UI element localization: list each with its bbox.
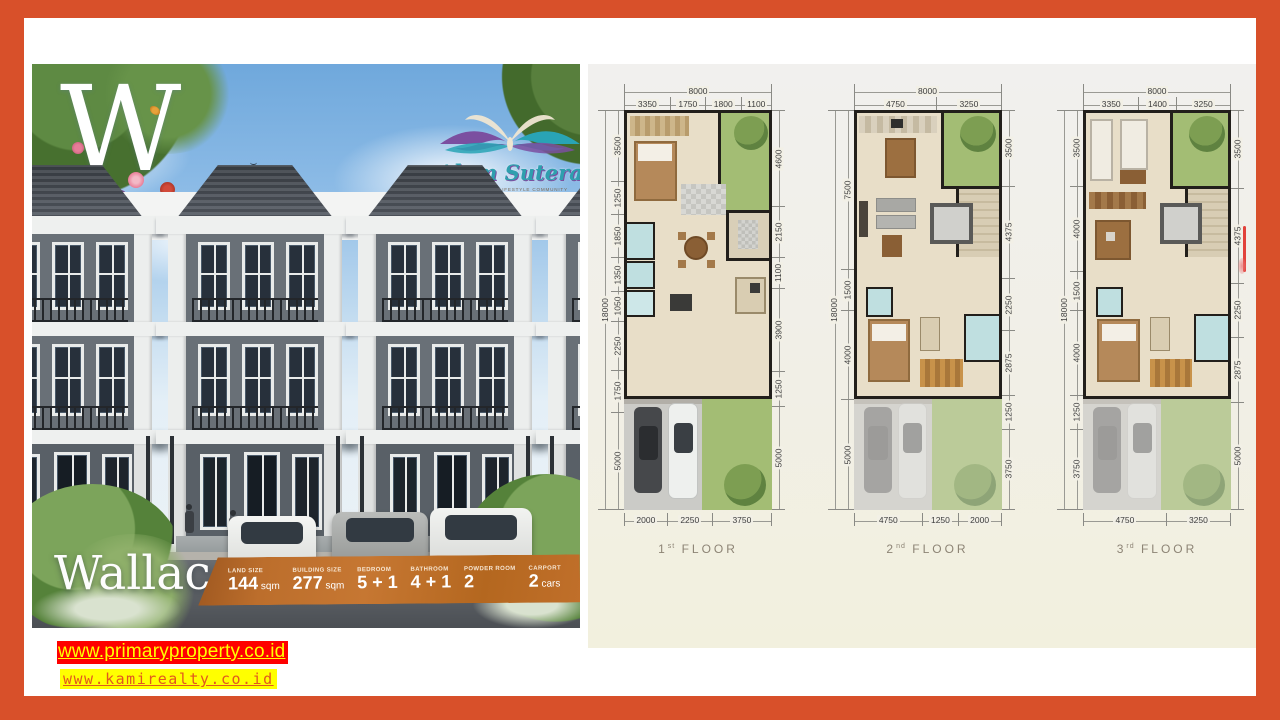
plan-top-dimensions: 80003350175018001100	[624, 84, 772, 110]
dimension-segment: 8000	[1083, 84, 1231, 97]
canopy	[536, 430, 580, 444]
dimension-value: 3750	[1003, 458, 1013, 481]
dimension-segment: 1750	[671, 97, 706, 110]
coffee-table	[882, 235, 902, 258]
width-total-dimension: 8000	[1083, 84, 1231, 97]
roof	[32, 164, 158, 218]
height-total-dimension: 18000	[828, 110, 841, 510]
dimension-segment: 3900	[772, 289, 785, 372]
dimension-value: 1100	[745, 99, 767, 109]
dimension-segment: 2150	[772, 207, 785, 258]
dimension-value: 3750	[1072, 458, 1082, 481]
cornice-band	[32, 322, 164, 336]
second-floor-wall	[548, 336, 580, 430]
dimension-segment: 8000	[854, 84, 1002, 97]
dimension-segment: 1750	[611, 371, 624, 412]
dimension-value: 4600	[774, 147, 784, 170]
dimension-segment: 18000	[1057, 110, 1070, 510]
canopy	[32, 430, 164, 444]
pilaster	[358, 336, 376, 430]
bed-pillows	[1102, 324, 1136, 341]
top-dimensions: 3350175018001100	[624, 97, 772, 110]
dimension-segment: 2000	[959, 513, 1002, 526]
window-mullion	[435, 377, 461, 379]
dimension-segment: 5000	[1231, 403, 1244, 510]
dimension-value: 1250	[1003, 401, 1013, 424]
dimension-segment: 2250	[1231, 284, 1244, 338]
dimension-segment: 5000	[772, 407, 785, 511]
dresser	[920, 317, 940, 351]
window-mullion	[32, 273, 37, 275]
plan-bottom-dimensions: 475012502000	[854, 513, 1002, 526]
balcony-railing	[382, 406, 508, 430]
dimension-value: 3500	[1003, 137, 1013, 160]
bathroom	[1194, 314, 1228, 362]
dimension-segment: 4000	[841, 311, 854, 401]
dimension-value: 3500	[1072, 137, 1082, 160]
dimension-value: 1400	[1146, 99, 1169, 109]
floor-word: FLOOR	[906, 542, 969, 556]
window-mullion	[258, 347, 260, 413]
tv-console	[859, 201, 868, 238]
bottom-dimensions: 475012502000	[854, 513, 1002, 526]
window-mullion	[99, 273, 125, 275]
window-mullion	[391, 273, 417, 275]
dining-table	[684, 236, 708, 260]
window-mullion	[289, 273, 315, 275]
dimension-segment: 3350	[1083, 97, 1139, 110]
window-mullion	[99, 377, 125, 379]
car-top-view-dark	[634, 407, 662, 494]
roof	[542, 164, 580, 218]
bathroom	[1096, 287, 1123, 317]
dimension-value: 2000	[634, 515, 657, 525]
dimension-segment: 2000	[624, 513, 668, 526]
dimension-segment: 1500	[1070, 272, 1083, 311]
sofa	[876, 198, 916, 212]
third-floor-wall	[358, 234, 532, 322]
dimension-value: 5000	[613, 449, 623, 472]
dimension-segment: 1500	[841, 270, 854, 311]
bottom-dimensions: 47503250	[1083, 513, 1231, 526]
dimension-value: 1250	[1072, 401, 1082, 424]
pilaster	[134, 234, 152, 322]
stair-void-skylight	[930, 203, 973, 244]
dimension-value: 1250	[613, 187, 623, 210]
dimension-value: 3750	[730, 515, 753, 525]
dimension-value: 2875	[1003, 351, 1013, 374]
cornice-band	[32, 216, 164, 234]
right-dimensions: 35004375225028755000	[1231, 110, 1244, 510]
stair-void-skylight	[1160, 203, 1203, 244]
dimension-value: 2250	[1233, 299, 1243, 322]
dimension-segment: 2250	[1002, 279, 1015, 332]
dimension-segment: 4750	[1083, 513, 1167, 526]
bed-single	[1090, 119, 1113, 181]
dimension-segment: 3250	[1167, 513, 1231, 526]
dimension-segment: 4375	[1002, 187, 1015, 279]
canopy	[156, 430, 354, 444]
dimension-value: 18000	[600, 296, 610, 324]
pilaster	[168, 336, 186, 430]
dimension-value: 18000	[1059, 296, 1069, 324]
window-mullion	[302, 347, 304, 413]
dimension-segment: 3500	[1070, 110, 1083, 187]
dimension-segment: 4000	[1070, 187, 1083, 272]
dimension-segment: 2875	[1002, 331, 1015, 395]
third-floor-wall	[548, 234, 580, 322]
plan-bottom-dimensions: 47503250	[1083, 513, 1231, 526]
window-mullion	[435, 273, 461, 275]
dimension-value: 5000	[774, 446, 784, 469]
spec-item-bedroom: BEDROOM5 + 1	[357, 567, 409, 594]
top-dimensions: 335014003250	[1083, 97, 1231, 110]
spec-value: 5 + 1	[357, 573, 409, 593]
window-mullion	[245, 377, 271, 379]
dimension-value: 3250	[957, 99, 980, 109]
dimension-segment: 18000	[828, 110, 841, 510]
pilaster	[514, 336, 532, 430]
wardrobe	[920, 359, 963, 387]
window-mullion	[55, 377, 81, 379]
width-total-dimension: 8000	[624, 84, 772, 97]
frame-border-left	[0, 0, 24, 720]
dimension-value: 18000	[829, 296, 839, 324]
dimension-value: 1750	[676, 99, 699, 109]
dimension-value: 1500	[842, 278, 852, 301]
dimension-segment: 1350	[611, 258, 624, 292]
faded-overlay	[1083, 399, 1231, 510]
dimension-value: 8000	[1146, 86, 1169, 96]
dimension-value: 2150	[774, 221, 784, 244]
third-floor-wall	[168, 234, 342, 322]
dimension-value: 7500	[842, 178, 852, 201]
window-mullion	[32, 377, 37, 379]
plan-middle: 1800035001250185013501050225017505000460…	[598, 110, 785, 510]
frame-border-bottom	[0, 696, 1280, 720]
primaryproperty-link[interactable]: www.primaryproperty.co.id	[57, 641, 288, 664]
garden-tree	[960, 116, 996, 152]
dimension-value: 2250	[613, 334, 623, 357]
spec-item-bathroom: BATHROOM4 + 1	[410, 566, 462, 593]
dimension-value: 4000	[1072, 217, 1082, 240]
window-mullion	[68, 347, 70, 413]
chair	[678, 260, 686, 268]
dimension-segment: 5000	[611, 413, 624, 510]
chair	[678, 232, 686, 240]
butterfly-logo-icon	[435, 104, 580, 166]
left-dimensions: 7500150040005000	[841, 110, 854, 510]
left-dimensions: 350040001500400012503750	[1070, 110, 1083, 510]
dimension-segment: 1400	[1139, 97, 1176, 110]
pilaster	[134, 336, 152, 430]
dimension-segment: 3750	[1002, 430, 1015, 510]
dimension-segment: 2875	[1231, 338, 1244, 404]
floor-ordinal: nd	[896, 543, 906, 550]
window-mullion	[201, 273, 227, 275]
plan-top-dimensions: 800047503250	[854, 84, 1002, 110]
roof	[352, 164, 538, 218]
bed-pillows	[638, 144, 672, 161]
window-mullion	[479, 273, 505, 275]
dimension-segment: 1850	[611, 215, 624, 258]
car-top-view-white	[668, 403, 698, 499]
dimension-segment: 8000	[624, 84, 772, 97]
dimension-segment: 3500	[611, 110, 624, 182]
chair	[1106, 232, 1115, 241]
spec-item-powder-room: POWDER ROOM2	[464, 566, 527, 593]
floor-number: 3	[1117, 542, 1127, 556]
dimension-value: 1800	[712, 99, 735, 109]
floor-label: 2nd FLOOR	[854, 542, 1002, 556]
dimension-value: 1050	[613, 295, 623, 318]
balcony-railing	[192, 406, 318, 430]
cornice-band	[346, 216, 544, 234]
dimension-value: 1500	[1072, 279, 1082, 302]
window-mullion	[289, 377, 315, 379]
garden-tree	[734, 116, 768, 150]
dimension-value: 4750	[884, 99, 907, 109]
spec-value: 277 sqm	[293, 574, 356, 594]
dimension-segment: 1250	[611, 182, 624, 215]
cornice-band	[536, 322, 580, 336]
window-mullion	[391, 377, 417, 379]
spec-value: 4 + 1	[411, 573, 463, 593]
car-windshield	[674, 423, 693, 453]
dimension-segment: 3500	[1231, 110, 1244, 189]
height-total-dimension: 18000	[1057, 110, 1070, 510]
floor-word: FLOOR	[1135, 542, 1198, 556]
frame-border-top	[0, 0, 1280, 18]
floor-number: 2	[886, 542, 896, 556]
dimension-segment: 1250	[1070, 396, 1083, 430]
dimension-value: 4000	[842, 343, 852, 366]
dimension-value: 8000	[916, 86, 939, 96]
patio-tiles	[681, 184, 726, 215]
cornice-band	[536, 216, 580, 234]
dimension-segment: 2250	[611, 322, 624, 372]
dimension-value: 1250	[774, 377, 784, 400]
dimension-value: 8000	[687, 86, 710, 96]
wardrobe	[630, 116, 690, 136]
dining-table	[885, 138, 916, 178]
window-mullion	[448, 347, 450, 413]
spec-value: 144 sqm	[228, 574, 291, 594]
dimension-value: 1250	[929, 515, 952, 525]
dimension-segment: 4000	[1070, 311, 1083, 396]
pilaster	[324, 336, 342, 430]
dimension-segment: 1250	[1002, 396, 1015, 430]
second-floor-wall	[358, 336, 532, 430]
plan-drawing	[624, 110, 772, 510]
kamirealty-link[interactable]: www.kamirealty.co.id	[60, 669, 277, 689]
bottom-dimensions: 200022503750	[624, 513, 772, 526]
dimension-value: 1750	[613, 380, 623, 403]
spec-unit: cars	[539, 579, 561, 590]
dimension-segment: 3350	[624, 97, 671, 110]
window-mullion	[201, 377, 227, 379]
pilaster	[168, 234, 186, 322]
dimension-value: 2875	[1233, 359, 1243, 382]
dimension-value: 2250	[1003, 293, 1013, 316]
dresser	[1150, 317, 1170, 351]
bathroom	[866, 287, 893, 317]
cornice-band	[156, 216, 354, 234]
plan-top-dimensions: 8000335014003250	[1083, 84, 1231, 110]
dimension-segment: 3750	[713, 513, 772, 526]
dimension-segment: 2250	[668, 513, 713, 526]
plan-drawing	[1083, 110, 1231, 510]
stove	[891, 119, 903, 128]
pink-smudge	[1238, 258, 1246, 274]
faded-overlay	[854, 399, 1002, 510]
spec-item-land-size: LAND SIZE144 sqm	[228, 568, 291, 595]
spec-item-carport: CARPORT2 cars	[529, 565, 573, 592]
pilaster	[514, 234, 532, 322]
second-floor-wall	[32, 336, 152, 430]
width-total-dimension: 8000	[854, 84, 1002, 97]
dimension-segment: 1250	[923, 513, 959, 526]
roof	[162, 164, 348, 218]
dimension-segment: 3250	[937, 97, 1001, 110]
plan-middle: 1800075001500400050003500437522502875125…	[828, 110, 1015, 510]
stair-tiles	[738, 220, 758, 248]
pilaster	[548, 336, 566, 430]
spec-value: 2	[464, 572, 527, 592]
floor-plan-2: 8000475032501800075001500400050003500437…	[828, 84, 1015, 648]
cornice-band	[156, 322, 354, 336]
plan-drawing	[854, 110, 1002, 510]
dimension-value: 3250	[1192, 99, 1215, 109]
person-figure	[184, 504, 194, 533]
dimension-value: 3350	[1100, 99, 1123, 109]
balcony-railing	[32, 298, 128, 322]
dimension-value: 3500	[613, 135, 623, 158]
third-floor-wall	[32, 234, 152, 322]
chair	[707, 260, 715, 268]
floor-plans-panel: 8000335017501800110018000350012501850135…	[588, 64, 1256, 648]
dimension-segment: 3250	[1177, 97, 1231, 110]
pilaster	[358, 234, 376, 322]
plan-middle: 1800035004000150040001250375035004375225…	[1057, 110, 1244, 510]
balcony-railing	[382, 298, 508, 322]
bathroom	[627, 290, 655, 317]
frame-border-right	[1256, 0, 1280, 720]
house-footprint	[1083, 110, 1231, 399]
dimension-value: 1350	[613, 263, 623, 286]
window-mullion	[492, 347, 494, 413]
floor-number: 1	[658, 542, 668, 556]
right-dimensions: 350043752250287512503750	[1002, 110, 1015, 510]
dimension-segment: 3750	[1070, 430, 1083, 510]
top-dimensions: 47503250	[854, 97, 1002, 110]
window-mullion	[479, 377, 505, 379]
console	[670, 294, 693, 311]
window-mullion	[215, 457, 217, 527]
pilaster	[548, 234, 566, 322]
left-dimensions: 35001250185013501050225017505000	[611, 110, 624, 510]
sofa	[876, 215, 916, 229]
desk	[1120, 170, 1146, 184]
carport-area	[854, 399, 1002, 510]
specs-banner: LAND SIZE144 sqmBUILDING SIZE277 sqmBEDR…	[194, 554, 580, 605]
pilaster	[324, 234, 342, 322]
dimension-value: 4750	[1113, 515, 1136, 525]
page: W Alam Sutera RESIDENTIAL & LIFESTYLE CO…	[0, 0, 1280, 720]
dimension-value: 5000	[842, 443, 852, 466]
dimension-segment: 4750	[854, 513, 924, 526]
house-footprint	[854, 110, 1002, 399]
balcony-railing	[32, 406, 128, 430]
balcony-railing	[572, 406, 580, 430]
dimension-segment: 1100	[742, 97, 772, 110]
dimension-value: 3500	[1233, 138, 1243, 161]
dimension-segment: 4750	[854, 97, 938, 110]
window-mullion	[214, 347, 216, 413]
carport-area	[624, 399, 772, 510]
spec-item-building-size: BUILDING SIZE277 sqm	[292, 567, 355, 594]
balcony-railing	[192, 298, 318, 322]
window-mullion	[245, 273, 271, 275]
dimension-segment: 3500	[1002, 110, 1015, 187]
bed-single	[1120, 119, 1148, 170]
floor-label: 3rd FLOOR	[1083, 542, 1231, 556]
ground-window	[200, 454, 230, 530]
car-roof	[639, 426, 659, 461]
floor-ordinal: rd	[1126, 543, 1134, 550]
dimension-value: 4000	[1072, 341, 1082, 364]
second-floor-wall	[168, 336, 342, 430]
carport-tree	[724, 464, 766, 506]
dimension-value: 4375	[1003, 221, 1013, 244]
floor-plan-3: 8000335014003250180003500400015004000125…	[1057, 84, 1244, 648]
dimension-segment: 1050	[611, 292, 624, 321]
dimension-value: 4375	[1233, 224, 1243, 247]
bathroom	[964, 314, 998, 362]
bed-pillows	[872, 324, 906, 341]
dimension-value: 5000	[1233, 445, 1243, 468]
window-mullion	[112, 347, 114, 413]
stove	[750, 283, 760, 293]
dimension-segment: 4600	[772, 110, 785, 207]
dimension-segment: 7500	[841, 110, 854, 270]
window-mullion	[404, 347, 406, 413]
height-total-dimension: 18000	[598, 110, 611, 510]
bathroom	[627, 222, 655, 260]
property-render-photo: W Alam Sutera RESIDENTIAL & LIFESTYLE CO…	[32, 64, 580, 628]
dimension-segment: 1800	[706, 97, 742, 110]
floor-plan-1: 8000335017501800110018000350012501850135…	[598, 84, 785, 648]
wardrobe	[1150, 359, 1193, 387]
right-dimensions: 460021501100390012505000	[772, 110, 785, 510]
garden-tree	[1189, 116, 1225, 152]
window-mullion	[55, 273, 81, 275]
dimension-value: 3350	[636, 99, 659, 109]
dimension-segment: 1100	[772, 258, 785, 289]
dimension-value: 1100	[774, 262, 784, 284]
dimension-value: 1850	[613, 225, 623, 248]
chair	[707, 232, 715, 240]
carport-area	[1083, 399, 1231, 510]
plan-bottom-dimensions: 200022503750	[624, 513, 772, 526]
bathroom	[627, 261, 655, 289]
dimension-segment: 18000	[598, 110, 611, 510]
dimension-value: 2000	[968, 515, 991, 525]
dimension-segment: 5000	[841, 400, 854, 510]
dimension-segment: 1250	[772, 372, 785, 406]
cornice-band	[346, 322, 544, 336]
house-footprint	[624, 110, 772, 399]
